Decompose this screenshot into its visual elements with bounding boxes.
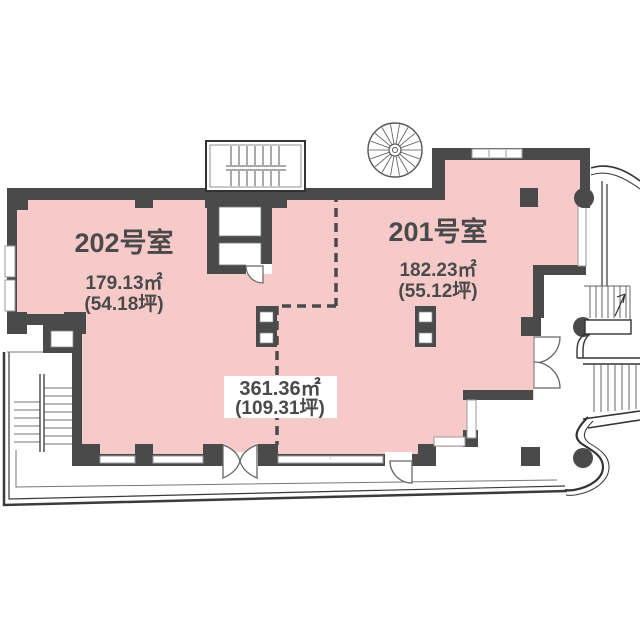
wall-step-right — [463, 390, 533, 400]
room-201-tsubo: (55.12坪) — [398, 280, 477, 302]
round-column — [574, 188, 594, 208]
wall-pillar — [135, 197, 153, 208]
shaft-opening — [260, 333, 273, 343]
wall-pillar — [203, 444, 223, 466]
floor-rect — [433, 148, 590, 275]
window-bottom-3 — [278, 456, 383, 463]
window-step-h — [434, 437, 465, 446]
elevator-cab-2 — [219, 243, 261, 265]
floor-rect — [433, 318, 534, 400]
room-201-label: 201号室 — [388, 216, 487, 247]
window-right-201 — [578, 206, 586, 266]
round-column — [573, 448, 593, 468]
wall-pillar — [7, 188, 28, 210]
window-bottom-2 — [153, 456, 203, 463]
room-202-label: 202号室 — [74, 227, 173, 258]
wall-pillar — [258, 444, 278, 466]
wall-left-lower — [72, 325, 82, 455]
square-column — [520, 188, 538, 207]
shaft-opening — [260, 312, 273, 322]
wall-pillar — [7, 312, 27, 334]
window-bottom-1 — [100, 456, 135, 463]
window-top-201 — [472, 149, 522, 158]
room-201-area: 182.23㎡ — [399, 258, 476, 281]
spiral-hub — [389, 144, 401, 156]
room-202-tsubo: (54.18坪) — [84, 293, 163, 315]
wall-pillar — [135, 444, 153, 466]
wall-pillar — [418, 444, 436, 466]
stair-landing — [585, 320, 631, 334]
square-column — [521, 447, 540, 466]
window-step-v — [467, 400, 476, 438]
window-left-2 — [5, 280, 15, 311]
room-202-area: 179.13㎡ — [85, 271, 162, 294]
wall-pillar — [521, 317, 541, 336]
shaft-opening — [51, 331, 73, 347]
total-area-m2: 361.36㎡ — [239, 376, 320, 400]
wall-bottom — [412, 454, 419, 466]
wall-step-right — [533, 265, 544, 318]
elevator-cab-1 — [219, 207, 261, 236]
staircase-top — [206, 141, 305, 191]
floorplan-svg: 202号室 179.13㎡ (54.18坪) 201号室 182.23㎡ (55… — [0, 0, 640, 640]
total-area-tsubo: (109.31坪) — [235, 397, 325, 419]
spiral-staircase-icon — [368, 123, 422, 177]
shaft-opening — [419, 333, 432, 343]
shaft-opening — [419, 312, 432, 322]
floorplan-canvas: 202号室 179.13㎡ (54.18坪) 201号室 182.23㎡ (55… — [0, 0, 640, 640]
wall-pillar — [270, 197, 287, 208]
window-left-1 — [5, 246, 15, 277]
